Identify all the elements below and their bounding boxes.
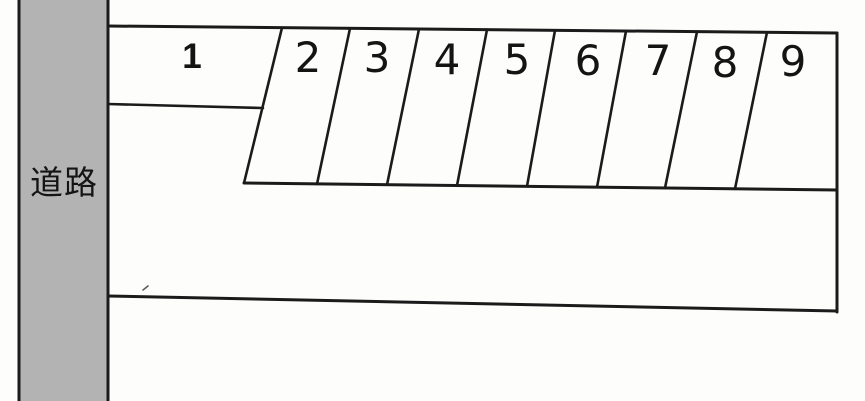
stall-3-label: 3 — [364, 33, 391, 82]
stall-9-label: 9 — [780, 37, 807, 86]
stall-1-label: 1 — [182, 37, 201, 76]
stall-4-label: 4 — [434, 35, 461, 84]
stall-6-label: 6 — [575, 36, 602, 85]
stall-2-label: 2 — [295, 33, 322, 82]
stall-7-label: 7 — [645, 36, 672, 85]
road-label: 道路 — [30, 163, 98, 202]
stall-5-label: 5 — [504, 35, 531, 84]
parking-diagram-canvas: 道路 1 2 3 4 5 6 7 8 9 — [0, 0, 865, 401]
stall-8-label: 8 — [712, 38, 739, 87]
parking-diagram: 道路 1 2 3 4 5 6 7 8 9 — [0, 0, 865, 401]
